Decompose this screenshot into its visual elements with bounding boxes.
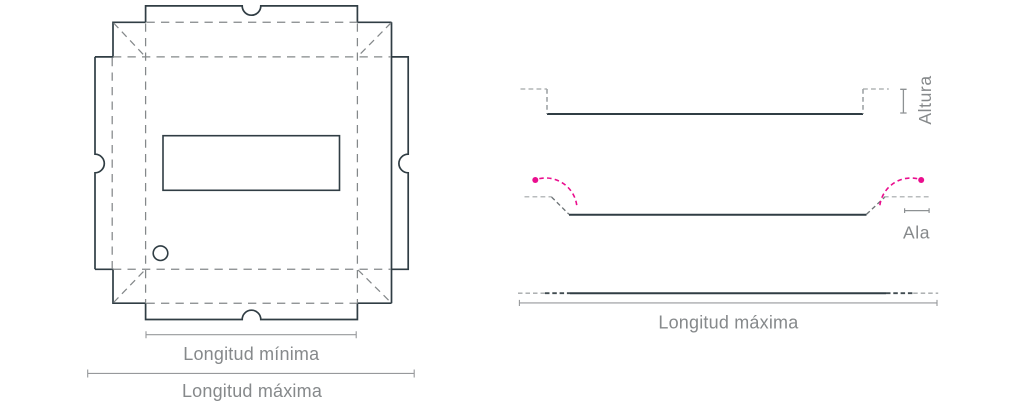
svg-text:Longitud mínima: Longitud mínima xyxy=(183,344,320,364)
svg-text:Longitud máxima: Longitud máxima xyxy=(182,381,323,401)
svg-text:Altura: Altura xyxy=(915,75,935,124)
svg-text:Longitud máxima: Longitud máxima xyxy=(658,313,799,333)
svg-text:Ala: Ala xyxy=(903,223,930,243)
